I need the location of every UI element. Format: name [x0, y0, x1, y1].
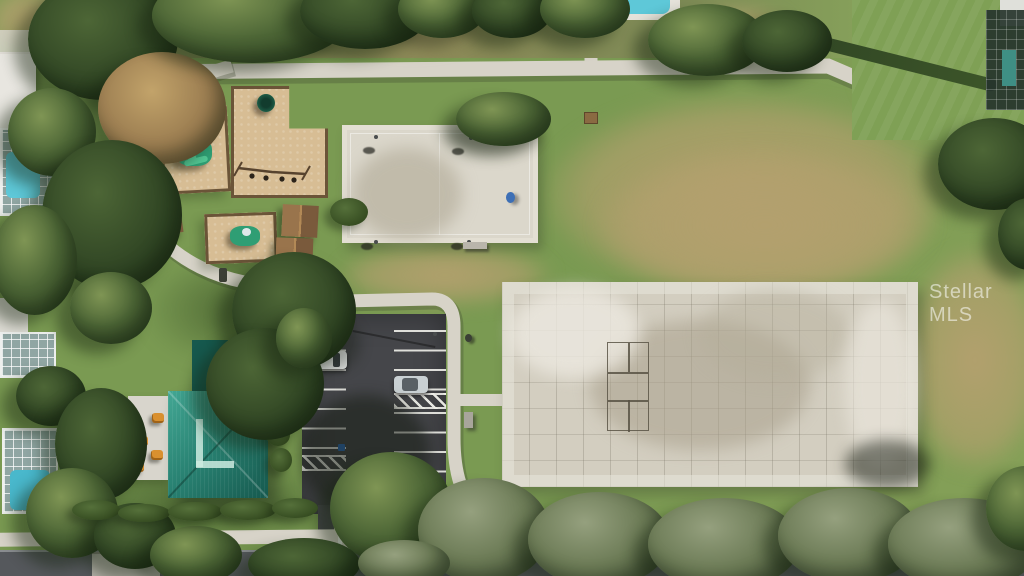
- hedge-bush: [330, 198, 368, 226]
- tree: [742, 10, 832, 72]
- basketball-hoop-shadow: [363, 147, 375, 154]
- picnic-table: [151, 450, 163, 460]
- hedge-bush: [72, 500, 120, 520]
- blue-equipment-item: [506, 192, 515, 203]
- basketball-hoop-pole: [374, 135, 378, 139]
- basketball-hoop-shadow: [452, 148, 464, 155]
- park-bench: [463, 242, 487, 249]
- basketball-hoop-shadow: [361, 243, 373, 250]
- park-bench: [219, 268, 227, 282]
- silver-car: [394, 376, 428, 393]
- toddler-playset-roof: [242, 228, 251, 236]
- basketball-hoop-shadow: [451, 243, 463, 250]
- trash-can: [465, 334, 472, 342]
- parking-light-pole: [433, 332, 437, 336]
- hedge-bush: [118, 504, 170, 522]
- screened-pool-cage: [986, 10, 1024, 110]
- roof-highlight: [196, 461, 234, 468]
- hedge-bush: [272, 498, 318, 518]
- swimming-pool: [1002, 50, 1016, 86]
- watermark: Stellar MLS: [929, 281, 1024, 327]
- park-bench: [464, 412, 473, 428]
- picnic-table: [152, 413, 164, 423]
- shade-shelter: [281, 204, 319, 238]
- swing-set: [230, 150, 350, 190]
- roof-highlight: [196, 419, 203, 467]
- tree-shadow-on-pad: [845, 440, 930, 488]
- playground-spinner: [257, 94, 275, 112]
- hedge-bush: [270, 448, 292, 472]
- basketball-hoop-pole: [374, 240, 378, 244]
- car-glass: [402, 378, 418, 391]
- tree: [456, 92, 551, 146]
- tree: [70, 272, 152, 344]
- hedge-bush: [168, 502, 222, 521]
- painted-game-grid: [607, 342, 649, 431]
- field-utility-box: [584, 112, 598, 124]
- aerial-park-photo: Stellar MLS: [0, 0, 1024, 576]
- court-stain: [352, 148, 462, 240]
- hedge-bush: [220, 500, 276, 520]
- pad-stain: [700, 290, 850, 380]
- tree: [150, 526, 242, 576]
- tree: [276, 308, 332, 368]
